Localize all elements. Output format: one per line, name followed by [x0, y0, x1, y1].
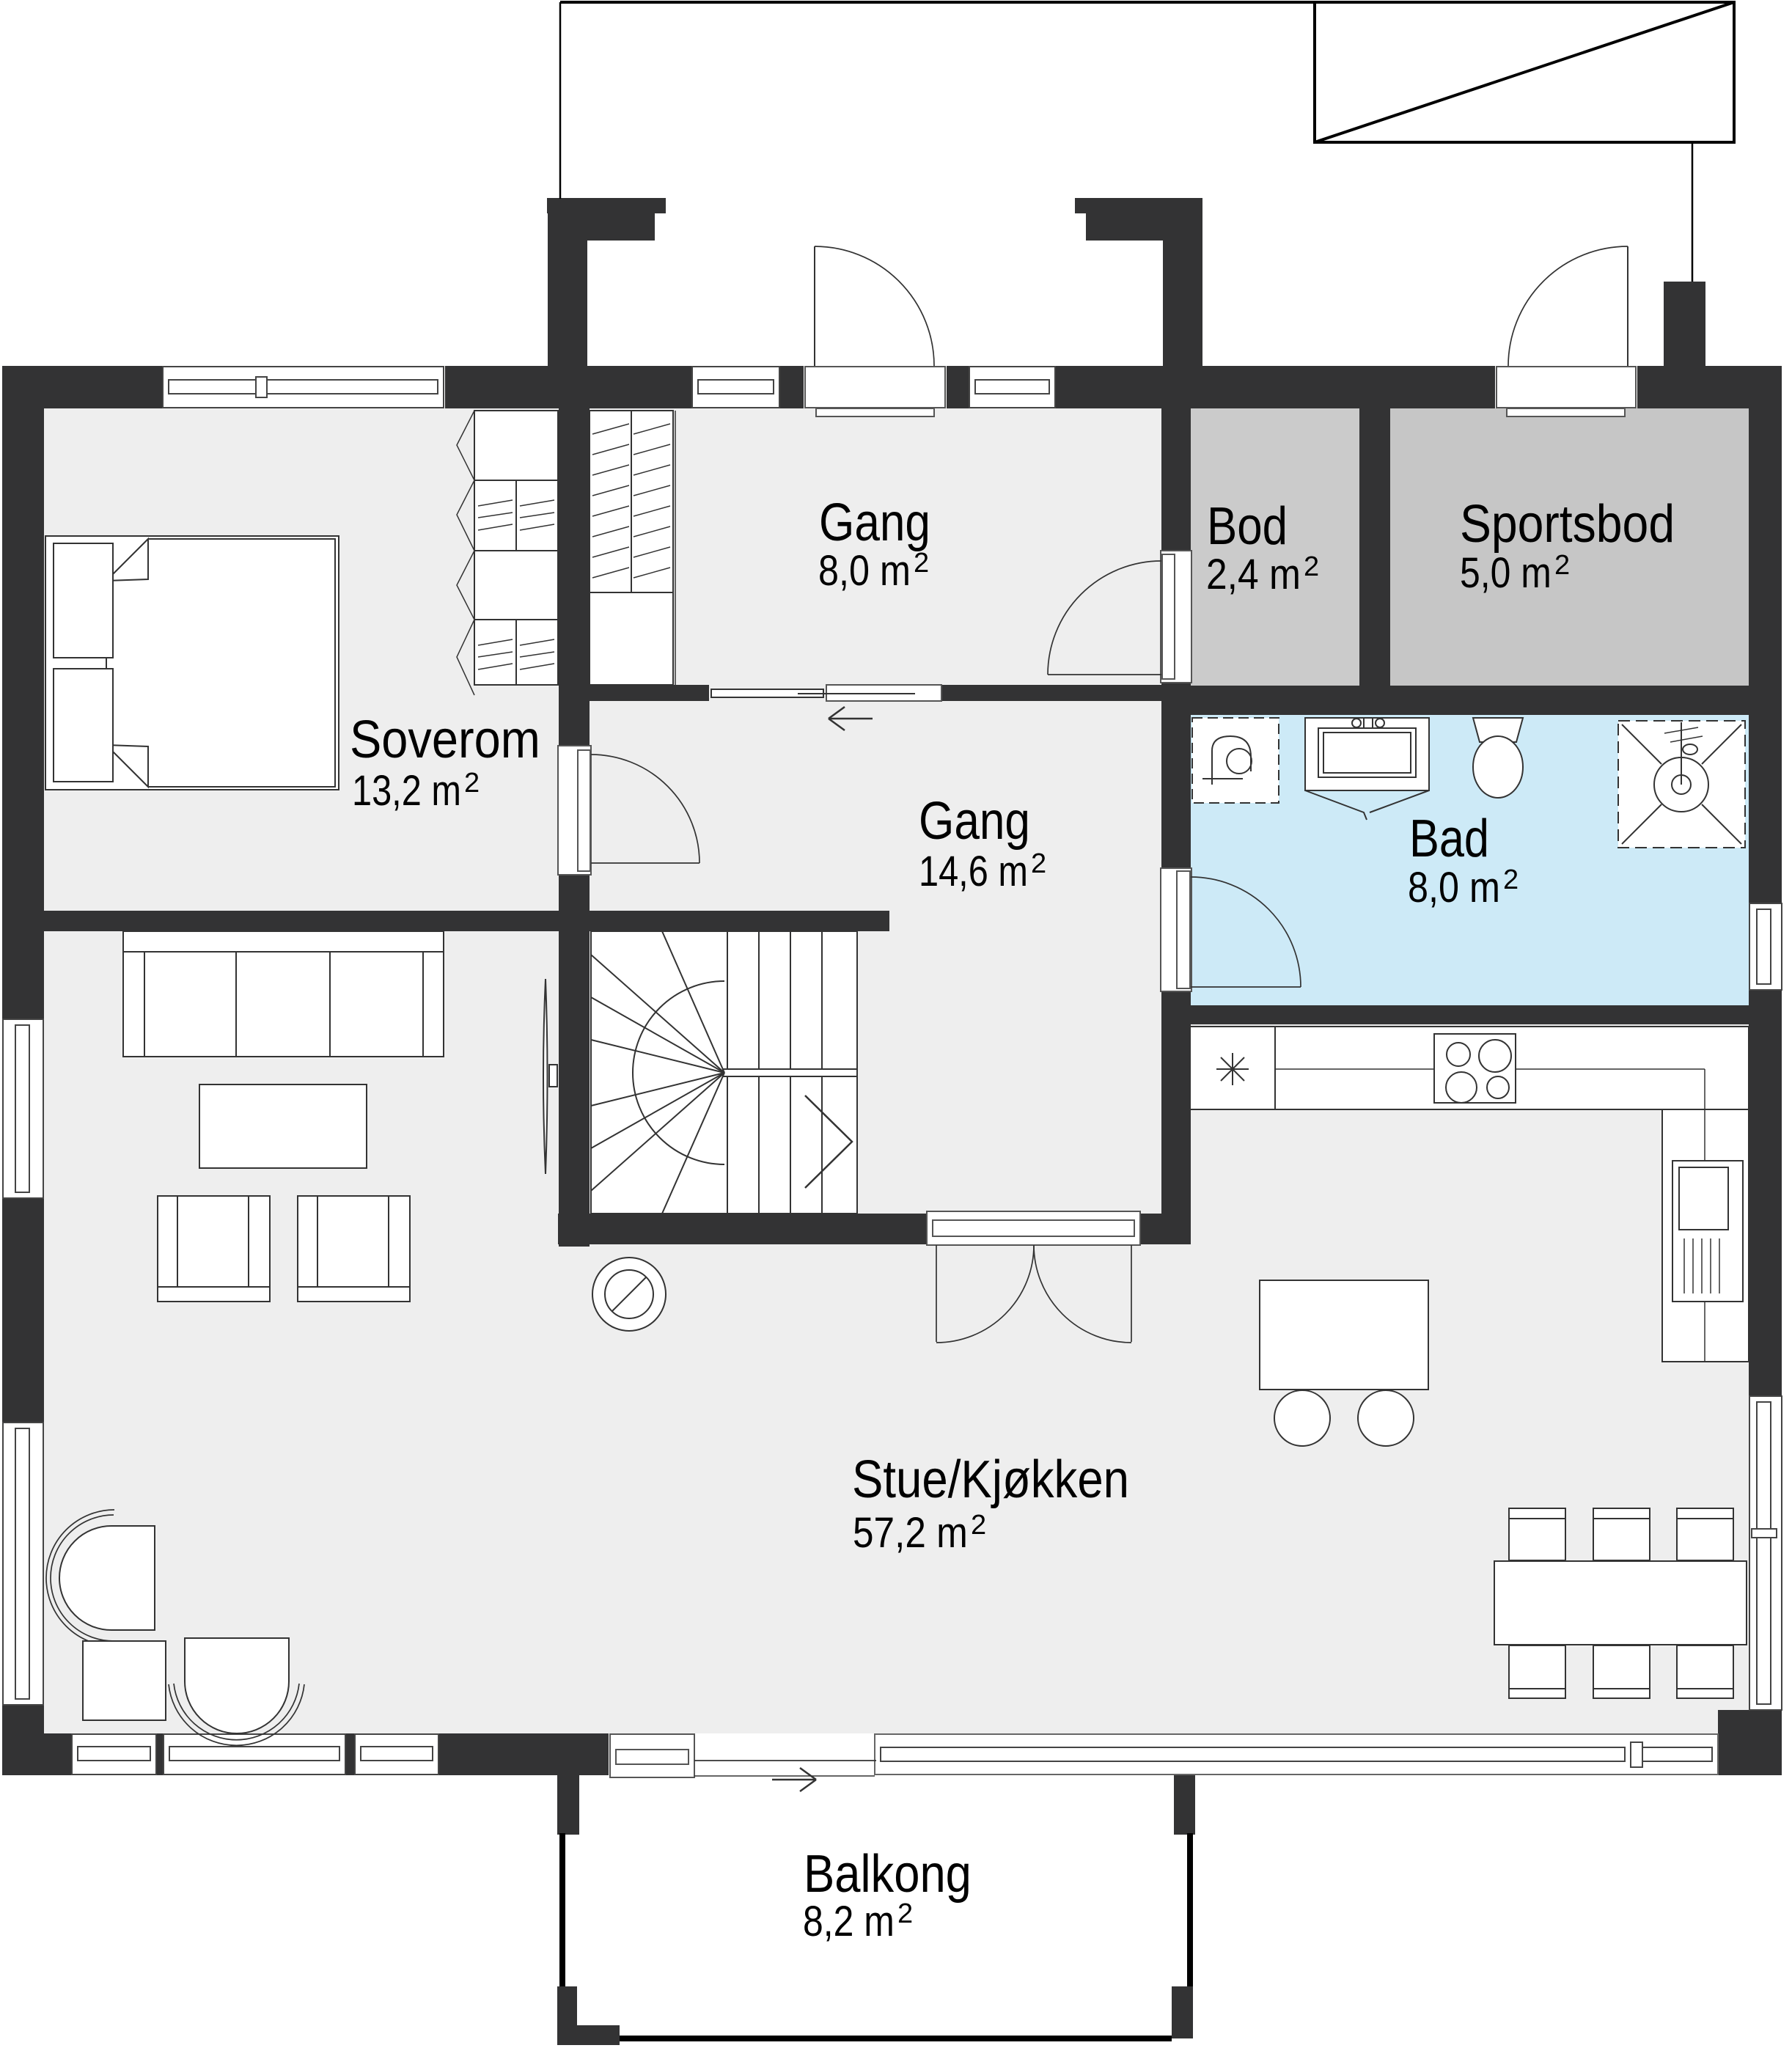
svg-text:14,6 m: 14,6 m: [919, 848, 1028, 895]
svg-text:Sportsbod: Sportsbod: [1460, 495, 1675, 554]
svg-text:2: 2: [914, 548, 929, 579]
svg-text:2: 2: [464, 768, 480, 799]
svg-text:2: 2: [1031, 848, 1046, 879]
svg-text:8,0 m: 8,0 m: [1408, 864, 1500, 911]
svg-text:Bod: Bod: [1207, 497, 1288, 556]
svg-text:2: 2: [971, 1510, 986, 1541]
svg-text:2: 2: [1554, 550, 1570, 581]
svg-text:Bad: Bad: [1409, 809, 1489, 868]
svg-text:Gang: Gang: [919, 792, 1030, 851]
svg-text:5,0 m: 5,0 m: [1460, 550, 1552, 597]
svg-text:2: 2: [897, 1898, 913, 1929]
svg-text:8,0 m: 8,0 m: [818, 547, 911, 595]
svg-text:2,4 m: 2,4 m: [1206, 550, 1301, 598]
svg-text:Soverom: Soverom: [350, 710, 540, 769]
svg-text:2: 2: [1503, 865, 1519, 895]
svg-text:2: 2: [1304, 551, 1319, 582]
svg-text:Balkong: Balkong: [804, 1845, 972, 1904]
svg-text:57,2 m: 57,2 m: [853, 1508, 968, 1557]
svg-text:Stue/Kjøkken: Stue/Kjøkken: [852, 1450, 1129, 1509]
svg-text:Gang: Gang: [819, 493, 930, 552]
svg-text:8,2 m: 8,2 m: [803, 1898, 895, 1945]
svg-text:13,2 m: 13,2 m: [352, 768, 461, 815]
